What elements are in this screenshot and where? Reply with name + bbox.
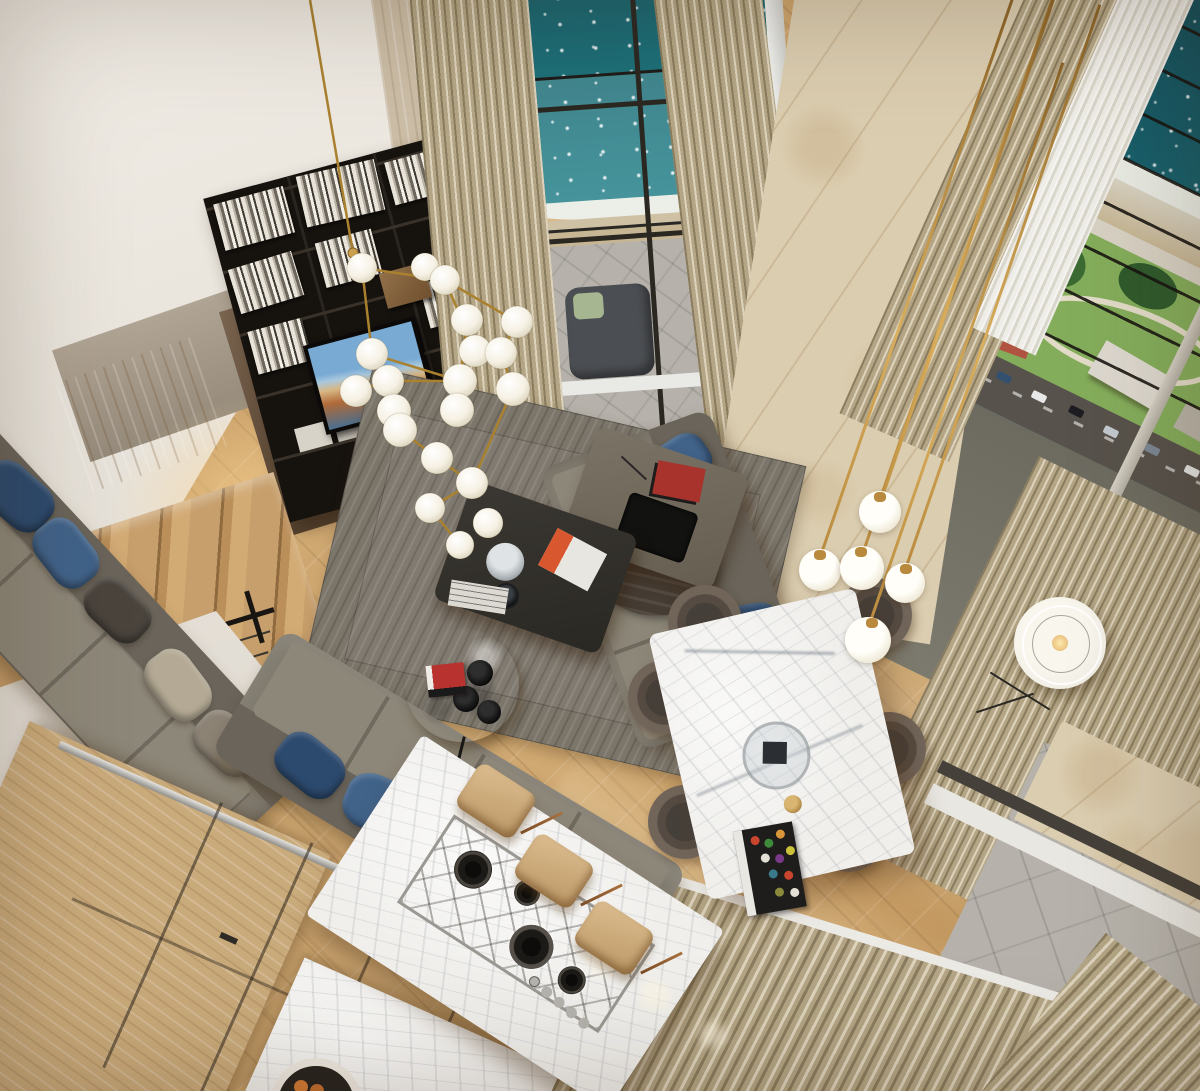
bowl-contents [763,742,787,764]
black-cup [477,700,501,724]
floor-lamp [1014,597,1106,689]
floor-reflection [640,980,670,1010]
round-side-table [405,628,519,742]
burner-large [447,843,500,896]
lamp-bulb [1052,635,1068,651]
gold-cup [782,793,804,815]
scene-aerial-interior-render [0,0,1200,1091]
pendant-globe [799,549,841,591]
pendant-brass-caps [874,492,886,502]
pendant-globe [840,546,884,590]
decor-stick [621,456,647,481]
floor-reflection [700,1022,726,1048]
cover-mosaic [750,835,760,845]
oranges [294,1080,308,1091]
black-cup [467,660,493,686]
cabinet-handle [219,932,238,945]
pendant-globe [845,617,891,663]
small-book [425,662,466,698]
marble-vein [685,649,835,655]
glass-centerpiece-bowl [736,715,818,797]
burner-double [501,916,562,977]
book-row [213,186,295,251]
branching-brass-chandelier [290,0,570,580]
burner-small [552,961,591,1000]
control-knobs [527,974,542,989]
red-book [652,460,706,503]
pendant-globe [885,563,925,603]
outdoor-cushion [573,292,605,320]
